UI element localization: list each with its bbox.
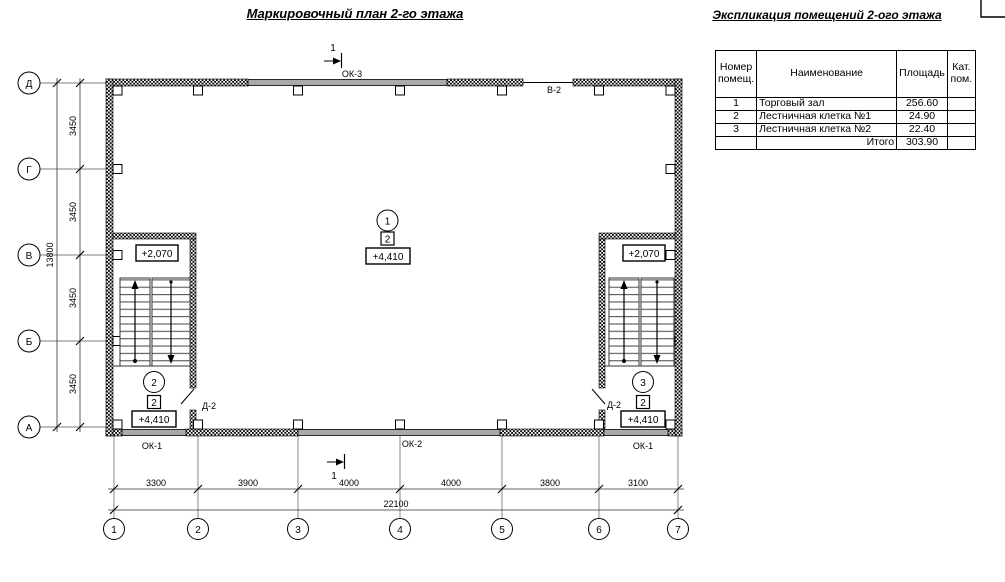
header-room-number: Номер помещ.	[716, 51, 757, 98]
section-mark-label: 1	[331, 471, 337, 482]
dim-label: 4000	[441, 478, 461, 488]
category-number: 2	[151, 398, 157, 409]
cell-room-number: 1	[716, 98, 757, 111]
col-axis-label: 5	[499, 525, 505, 536]
cell-room-number: 3	[716, 124, 757, 137]
row-axis-label: Б	[26, 337, 33, 348]
cell-room-number: 2	[716, 111, 757, 124]
row-axis-label: Д	[26, 79, 33, 90]
explication-table: Номер помещ. Наименование Площадь Кат. п…	[715, 50, 976, 150]
row-axis-label: В	[26, 251, 33, 262]
section-mark-top: 1	[324, 43, 342, 68]
dim-label: 3900	[238, 478, 258, 488]
cell-room-name: Лестничная клетка №2	[757, 124, 897, 137]
room-mark-center: 1 2 +4,410	[366, 210, 410, 264]
dim-label: 3450	[68, 116, 78, 136]
header-category: Кат. пом.	[947, 51, 975, 98]
col-axis-label: 7	[675, 525, 681, 536]
dim-label: 3450	[68, 202, 78, 222]
elevation-label: +4,410	[139, 415, 170, 426]
axis-bubbles	[18, 72, 689, 540]
table-row: 2 Лестничная клетка №1 24.90	[716, 111, 976, 124]
cell-room-name: Лестничная клетка №1	[757, 111, 897, 124]
table-total-row: Итого 303.90	[716, 137, 976, 150]
elevation-label: +4,410	[373, 252, 404, 263]
door-leaf-left	[181, 389, 194, 404]
elevation-label: +2,070	[629, 249, 660, 260]
sheet-frame-corner	[981, 0, 1005, 17]
cell-room-area: 256.60	[897, 98, 948, 111]
row-axis-label: Г	[26, 165, 32, 176]
dim-label: 4000	[339, 478, 359, 488]
stairs-right	[605, 278, 674, 366]
col-axis-label: 6	[596, 525, 602, 536]
room-number: 3	[640, 378, 646, 389]
cell-total-label: Итого	[757, 137, 897, 150]
cell-room-name: Торговый зал	[757, 98, 897, 111]
cell-room-category	[947, 137, 975, 150]
table-header-row: Номер помещ. Наименование Площадь Кат. п…	[716, 51, 976, 98]
dim-label: 3300	[146, 478, 166, 488]
drawing-sheet: Маркировочный план 2-го этажа Экспликаци…	[0, 0, 1005, 582]
room-number: 2	[151, 378, 157, 389]
col-axis-label: 1	[111, 525, 117, 536]
row-axis-label: А	[26, 423, 33, 434]
cell-room-area: 24.90	[897, 111, 948, 124]
window-label-ok1-right: ОК-1	[633, 441, 653, 451]
col-axis-label: 2	[195, 525, 201, 536]
category-number: 2	[385, 234, 391, 245]
dim-total-label: 13800	[45, 242, 55, 267]
cell-room-area: 22.40	[897, 124, 948, 137]
col-axis-label: 3	[295, 525, 301, 536]
cell-room-category	[947, 111, 975, 124]
opening-label-v2: В-2	[547, 85, 561, 95]
elevation-label: +2,070	[142, 249, 173, 260]
door-leaf-right	[592, 389, 605, 404]
window-label-ok1-left: ОК-1	[142, 441, 162, 451]
room-number: 1	[385, 216, 391, 227]
dim-total-label: 22100	[383, 499, 408, 509]
cell-total-area: 303.90	[897, 137, 948, 150]
stairs-left	[113, 278, 190, 366]
header-name: Наименование	[757, 51, 897, 98]
table-row: 1 Торговый зал 256.60	[716, 98, 976, 111]
cell-room-number	[716, 137, 757, 150]
cell-room-category	[947, 124, 975, 137]
door-label-d2-left: Д-2	[202, 401, 216, 411]
dim-label: 3800	[540, 478, 560, 488]
dim-label: 3100	[628, 478, 648, 488]
dim-label: 3450	[68, 374, 78, 394]
section-mark-label: 1	[330, 43, 336, 54]
window-label-ok3: ОК-3	[342, 69, 362, 79]
elevation-label: +4,410	[628, 415, 659, 426]
category-number: 2	[640, 398, 646, 409]
dim-label: 3450	[68, 288, 78, 308]
header-area: Площадь	[897, 51, 948, 98]
table-row: 3 Лестничная клетка №2 22.40	[716, 124, 976, 137]
door-label-d2-right: Д-2	[607, 400, 621, 410]
window-label-ok2: ОК-2	[402, 439, 422, 449]
cell-room-category	[947, 98, 975, 111]
col-axis-label: 4	[397, 525, 403, 536]
